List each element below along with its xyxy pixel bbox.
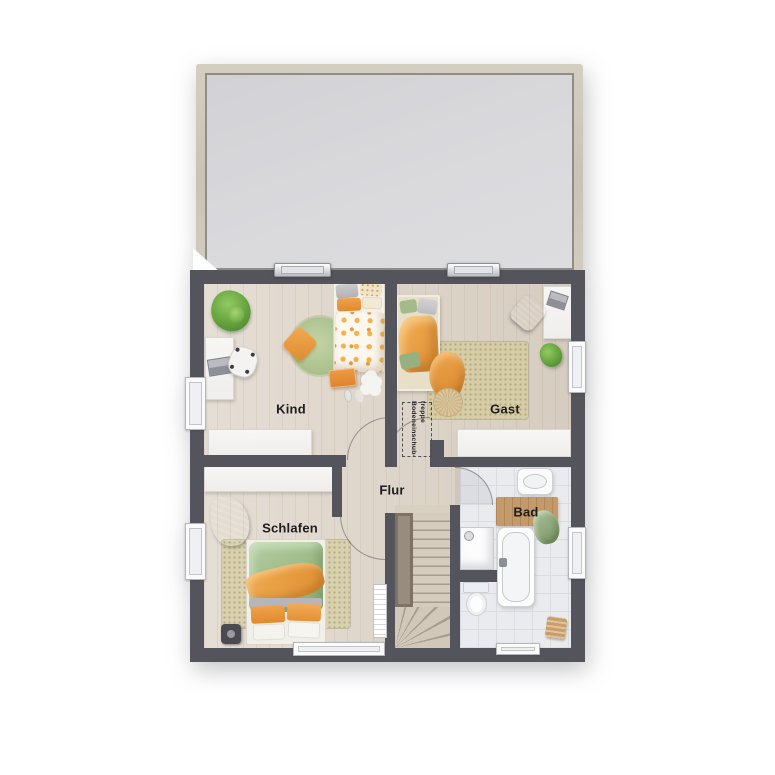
staircase-winder-steps — [395, 607, 450, 648]
roof-surface — [205, 73, 574, 270]
schlafen-pillow-orange-1 — [251, 605, 286, 624]
gast-pouf — [433, 388, 463, 417]
schlafen-pillow-orange-2 — [287, 603, 322, 621]
schlafen-speaker — [221, 624, 241, 644]
wall-outer-right — [571, 270, 585, 662]
room-label-flur: Flur — [379, 483, 404, 498]
gast-pillow-green — [399, 299, 418, 314]
kind-duvet — [334, 311, 385, 372]
bad-bathtub-faucet — [499, 558, 507, 567]
window-bottom-bad — [496, 643, 540, 655]
window-left-schlafen — [185, 523, 206, 580]
schlafen-pillow-white-1 — [253, 623, 286, 640]
kind-pillow-orange — [337, 298, 361, 312]
gast-pillow-gray — [417, 298, 438, 315]
gast-laptop — [546, 290, 569, 310]
bad-bathtub — [497, 527, 535, 607]
schlafen-pillow-white-2 — [288, 621, 321, 639]
wall-outer-top — [190, 270, 585, 284]
wall-bad-left — [450, 505, 460, 648]
room-label-gast: Gast — [490, 402, 520, 417]
staircase-treads — [413, 513, 450, 607]
wall-schlafen-right — [332, 467, 342, 517]
flur-radiator — [373, 584, 387, 638]
window-left-kind — [185, 377, 206, 430]
room-label-bad: Bad — [513, 505, 538, 520]
bad-toilet — [466, 592, 487, 616]
window-right-bad — [568, 527, 586, 579]
floorplan-canvas: Bodeneinschub- treppe Kind Gast Flur Sch… — [0, 0, 775, 775]
bad-washing-machine — [460, 527, 494, 570]
bad-stool — [545, 616, 568, 640]
kind-pillow-white — [362, 296, 383, 309]
kind-bed — [333, 280, 385, 373]
staircase-railing — [395, 513, 413, 607]
schlafen-wardrobe — [204, 464, 333, 492]
window-right-gast — [568, 341, 586, 393]
room-label-kind: Kind — [276, 402, 306, 417]
roof-window-gast — [447, 263, 500, 277]
wall-kind-bottom — [204, 455, 346, 467]
kind-pillow-gray — [335, 283, 358, 299]
bad-sink — [517, 468, 553, 495]
wall-outer-left — [190, 270, 204, 662]
gast-desk — [543, 286, 572, 339]
kind-wardrobe — [208, 429, 312, 456]
wall-bad-partition — [460, 570, 497, 582]
wall-gast-bottom — [430, 457, 571, 467]
kind-flower-mat — [361, 374, 373, 386]
roof-window-kind — [274, 263, 331, 277]
kind-pillow-dotted — [360, 282, 383, 297]
window-bottom-schlafen — [293, 642, 385, 656]
gast-sideboard — [457, 429, 571, 457]
kind-storage-bench — [328, 368, 357, 389]
building: Bodeneinschub- treppe Kind Gast Flur Sch… — [0, 0, 775, 775]
room-label-schlafen: Schlafen — [262, 521, 318, 536]
schlafen-bed — [246, 539, 326, 645]
